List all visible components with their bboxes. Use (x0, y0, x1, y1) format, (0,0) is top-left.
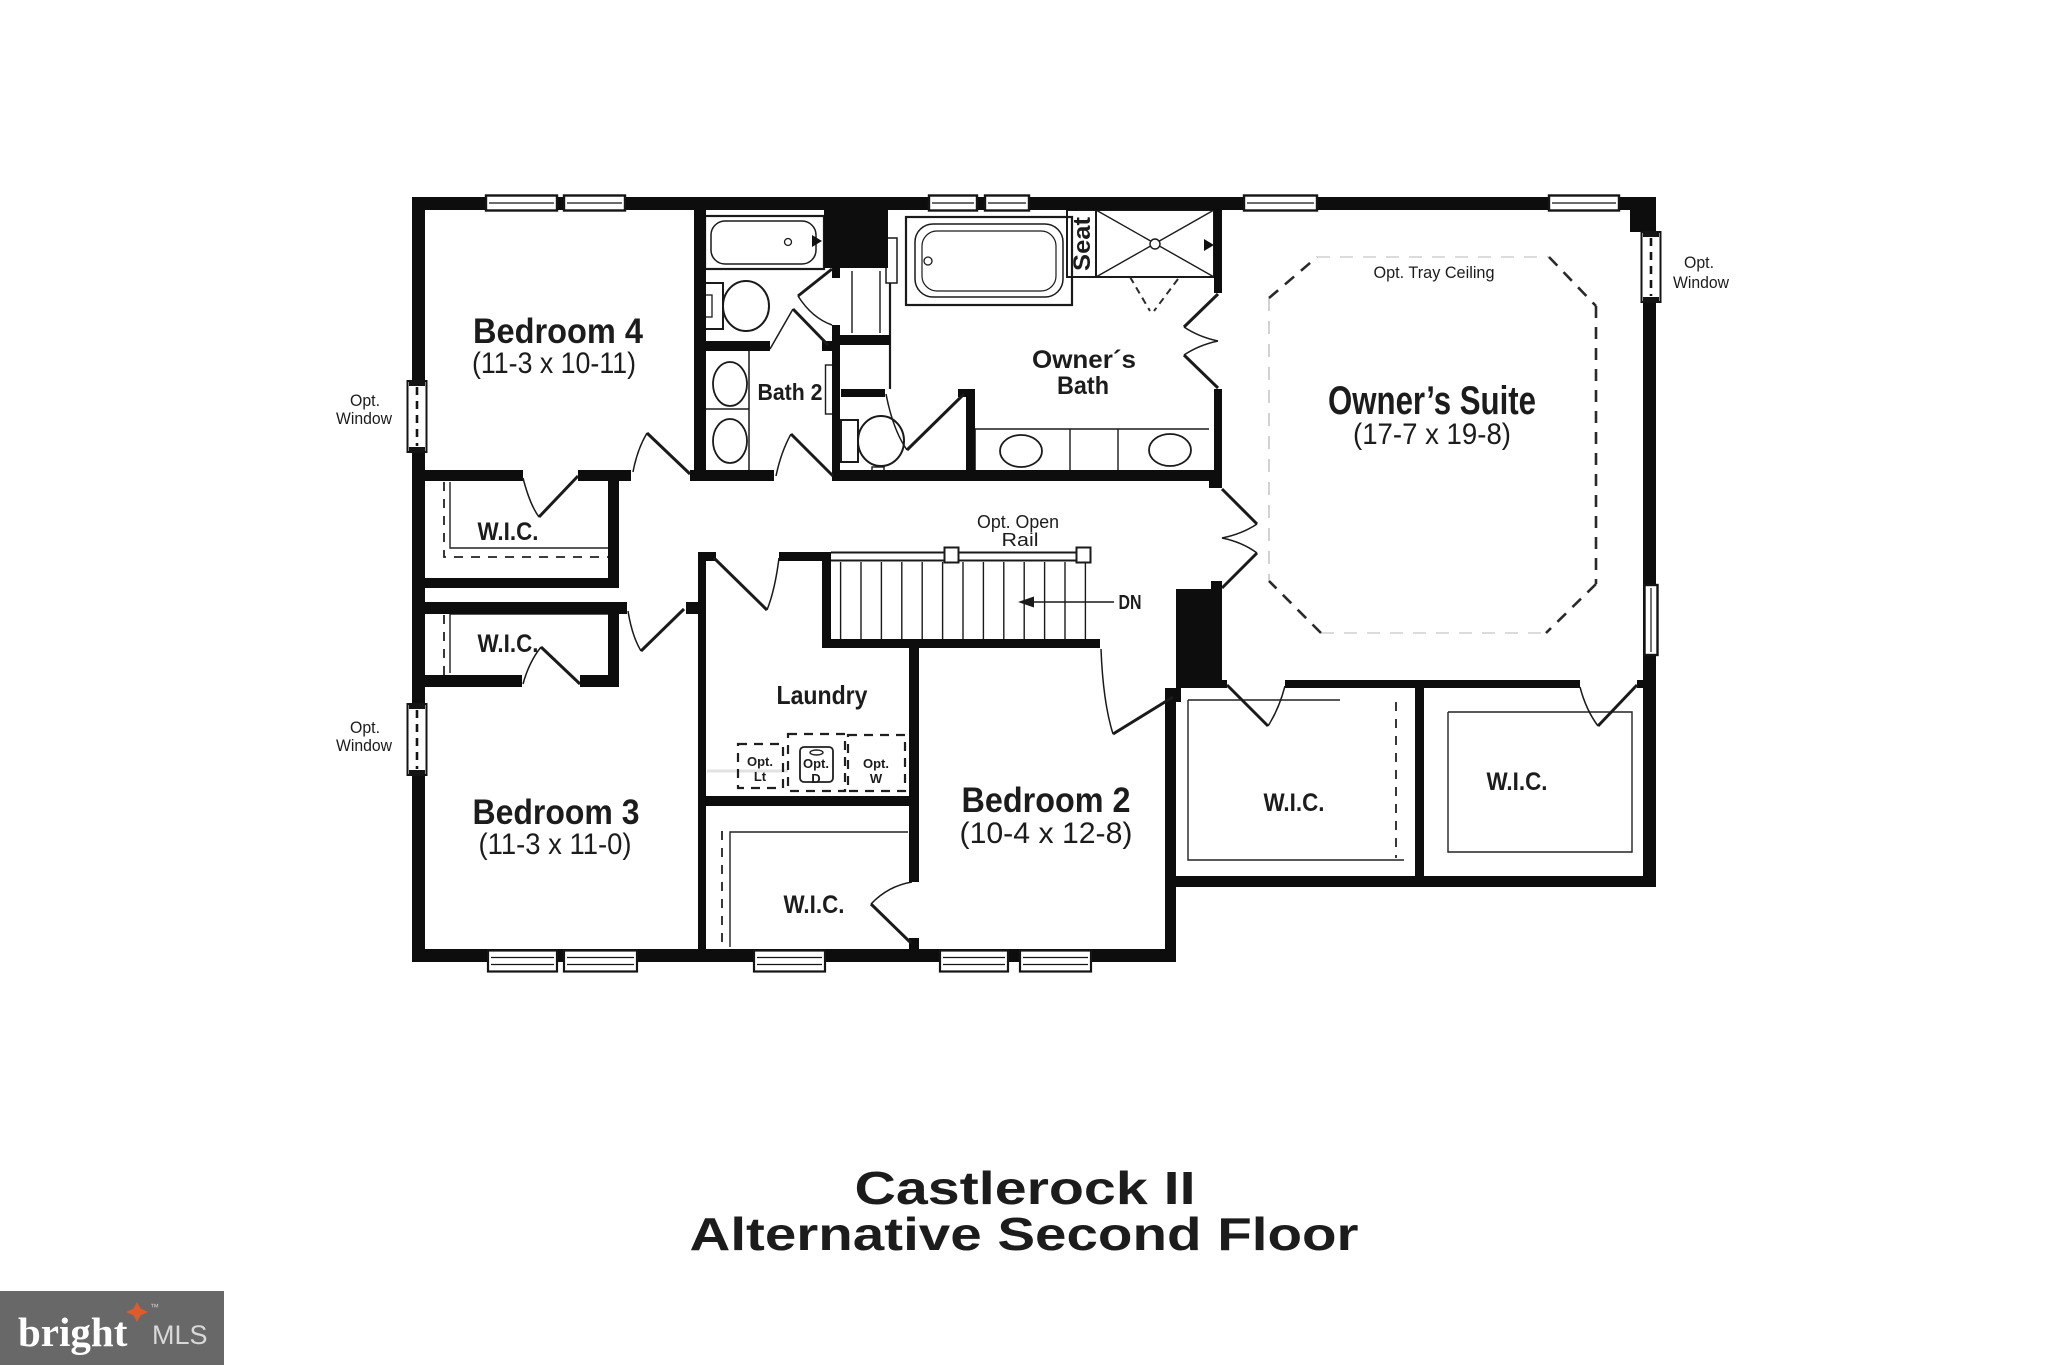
svg-text:(17-7 x 19-8): (17-7 x 19-8) (1353, 418, 1511, 451)
svg-text:W.I.C.: W.I.C. (784, 891, 845, 919)
svg-text:bright: bright (18, 1309, 128, 1355)
svg-text:Castlerock II: Castlerock II (855, 1162, 1196, 1214)
svg-text:Bath 2: Bath 2 (758, 379, 823, 405)
svg-text:DN: DN (1119, 592, 1142, 614)
svg-text:Window: Window (336, 409, 393, 428)
svg-text:Window: Window (1673, 273, 1730, 292)
svg-text:(10-4 x 12-8): (10-4 x 12-8) (960, 817, 1133, 850)
svg-text:Lt: Lt (754, 769, 767, 784)
svg-text:Rail: Rail (1002, 530, 1039, 550)
svg-text:Bedroom 3: Bedroom 3 (473, 793, 640, 832)
svg-text:Seat: Seat (1069, 217, 1096, 271)
svg-text:Alternative Second Floor: Alternative Second Floor (690, 1208, 1359, 1260)
svg-text:Bedroom 4: Bedroom 4 (473, 312, 643, 351)
svg-text:Window: Window (336, 736, 393, 755)
svg-text:(11-3 x 10-11): (11-3 x 10-11) (472, 347, 636, 380)
svg-text:W.I.C.: W.I.C. (1487, 768, 1548, 796)
svg-text:Opt.: Opt. (803, 756, 829, 771)
svg-text:Opt.: Opt. (1684, 253, 1714, 272)
svg-text:Owner’s Suite: Owner’s Suite (1328, 379, 1536, 423)
svg-text:W.I.C.: W.I.C. (478, 518, 539, 546)
svg-text:(11-3 x 11-0): (11-3 x 11-0) (479, 828, 632, 861)
svg-text:Opt.: Opt. (747, 754, 773, 769)
svg-text:W: W (870, 771, 883, 786)
svg-text:Opt. Tray Ceiling: Opt. Tray Ceiling (1374, 263, 1495, 282)
svg-text:Laundry: Laundry (777, 680, 868, 710)
svg-text:Opt.: Opt. (350, 718, 380, 737)
svg-text:MLS: MLS (152, 1320, 208, 1350)
svg-text:Owner´s: Owner´s (1032, 346, 1136, 374)
svg-text:Opt.: Opt. (863, 756, 889, 771)
svg-text:W.I.C.: W.I.C. (1264, 789, 1325, 817)
svg-text:Bath: Bath (1057, 372, 1109, 400)
svg-text:D: D (811, 771, 820, 786)
svg-text:Opt.: Opt. (350, 391, 380, 410)
svg-text:W.I.C.: W.I.C. (478, 630, 539, 658)
svg-text:Opt. Open: Opt. Open (977, 512, 1059, 532)
svg-text:™: ™ (150, 1302, 159, 1312)
svg-text:Bedroom 2: Bedroom 2 (962, 781, 1131, 820)
